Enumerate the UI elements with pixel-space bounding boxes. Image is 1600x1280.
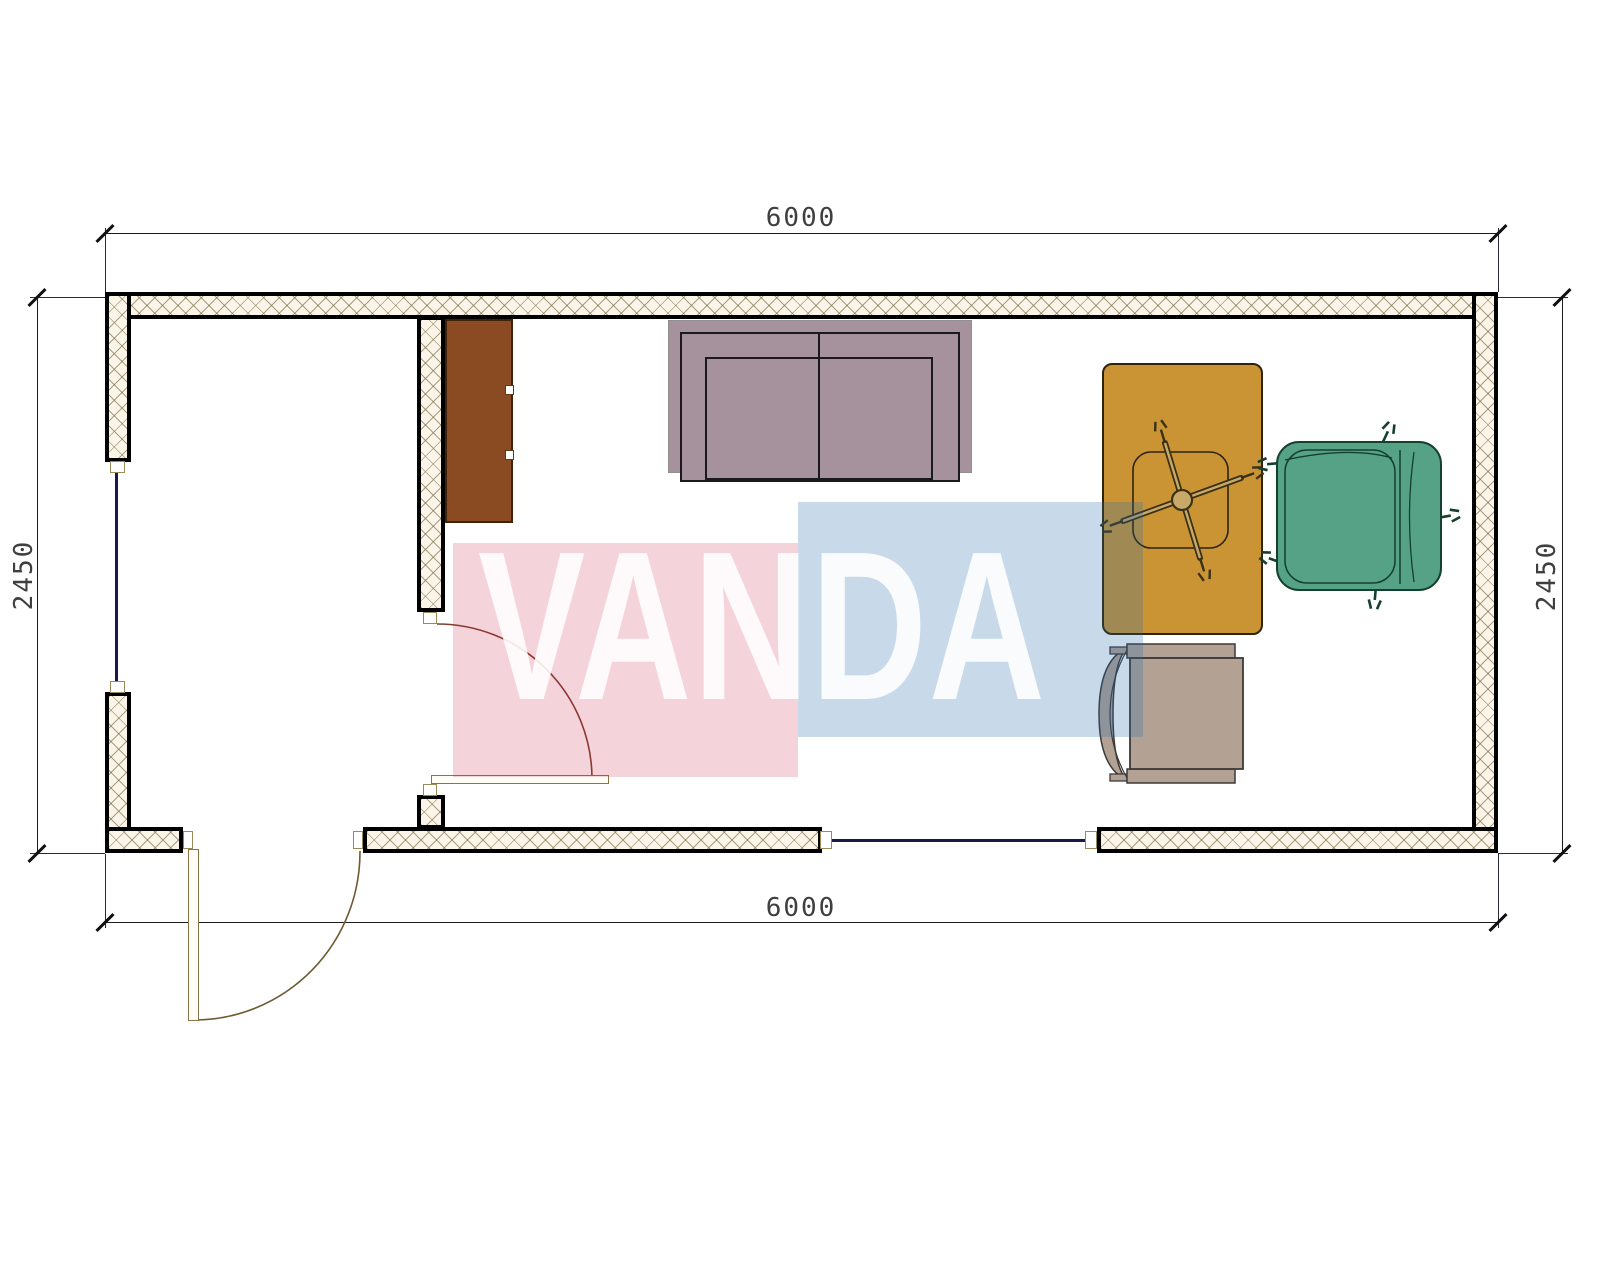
wall-left-foot (105, 827, 183, 853)
wall-stub (417, 795, 445, 829)
dim-label-top: 6000 (736, 205, 866, 231)
wall-left-upper (105, 292, 131, 462)
wall-top (105, 292, 1498, 319)
door-frame (423, 612, 437, 624)
door-frame (423, 784, 437, 796)
entry-door-leaf (188, 849, 199, 1021)
floor-plan-canvas: 6000 6000 2450 2450 (0, 0, 1600, 1280)
dim-label-left: 2450 (11, 510, 37, 640)
entry-door-swing-arc (196, 851, 360, 1020)
dim-label-bottom: 6000 (736, 895, 866, 921)
sofa-cushion-divider (818, 334, 820, 480)
window-frame (110, 461, 125, 473)
wall-partition (417, 316, 445, 612)
cabinet (445, 319, 513, 523)
window-left-glass (115, 473, 118, 681)
extension-line (1498, 853, 1568, 854)
extension-line (30, 297, 105, 298)
wall-bottom-right (1097, 827, 1498, 853)
dim-label-right: 2450 (1534, 511, 1560, 641)
window-frame (820, 831, 832, 849)
extension-line (1498, 854, 1499, 928)
window-bottom-glass (832, 839, 1085, 842)
dim-line-top (105, 233, 1498, 234)
extension-line (1498, 228, 1499, 292)
extension-line (105, 228, 106, 292)
door-frame (183, 831, 193, 849)
window-frame (1085, 831, 1097, 849)
armchair-green (1258, 421, 1461, 610)
cabinet-handle (505, 450, 514, 460)
door-frame (353, 831, 363, 849)
watermark-text: VANDA (478, 520, 1047, 732)
extension-line (1498, 297, 1568, 298)
cabinet-handle (505, 385, 514, 395)
wall-right (1472, 292, 1498, 853)
extension-line (105, 854, 106, 928)
wall-bottom-left (363, 827, 822, 853)
dim-line-right (1562, 297, 1563, 853)
extension-line (30, 853, 105, 854)
window-frame (110, 681, 125, 693)
